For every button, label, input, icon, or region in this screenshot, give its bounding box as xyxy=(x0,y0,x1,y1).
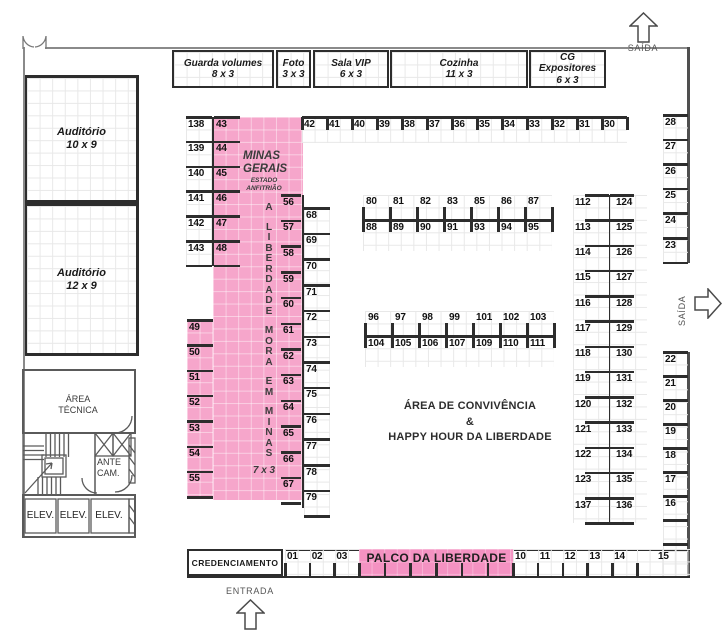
room-name: Auditório xyxy=(57,126,106,139)
booth-02: 02 xyxy=(312,551,323,562)
booth-divider xyxy=(187,496,213,499)
vertical-word: A xyxy=(261,203,277,214)
booth-divider xyxy=(416,207,419,232)
booth-group-island-80: 8081828385868788899091939495 xyxy=(363,195,552,251)
booth-126: 126 xyxy=(616,247,632,258)
booth-group-wall-28: 282726252423 xyxy=(663,115,688,263)
booth-60: 60 xyxy=(283,299,294,310)
booth-138: 138 xyxy=(188,119,204,130)
booth-23: 23 xyxy=(665,240,676,251)
booth-118: 118 xyxy=(575,348,591,359)
booth-79: 79 xyxy=(306,492,317,503)
double-door-icon xyxy=(21,32,48,49)
booth-51: 51 xyxy=(189,372,200,383)
booth-divider xyxy=(562,563,565,576)
booth-57: 57 xyxy=(283,222,294,233)
convivencia-line2: & xyxy=(348,415,592,431)
booth-110: 110 xyxy=(503,338,519,349)
booth-divider xyxy=(418,323,421,348)
vertical-letter: M xyxy=(261,407,277,418)
booth-19: 19 xyxy=(665,426,676,437)
booth-68: 68 xyxy=(306,210,317,221)
booth-120: 120 xyxy=(575,399,591,410)
room-auditorio-12x9: Auditório 12 x 9 xyxy=(24,203,139,356)
booth-116: 116 xyxy=(575,298,591,309)
booth-122: 122 xyxy=(575,449,591,460)
booth-15: 15 xyxy=(658,551,669,562)
ante-cam-line2: CAM. xyxy=(97,468,121,479)
booth-89: 89 xyxy=(393,222,404,233)
room-foto: Foto 3 x 3 xyxy=(276,50,311,88)
booth-group-top-row: 42414039383736353433323130 xyxy=(302,117,627,143)
minas-vertical-text: ALIBERDADEMORAEMMINAS xyxy=(261,203,277,469)
booth-62: 62 xyxy=(283,351,294,362)
booth-divider xyxy=(499,323,502,348)
booth-55: 55 xyxy=(189,473,200,484)
booth-107: 107 xyxy=(449,338,465,349)
booth-group-col-112: 112113114115116117118119120121122123137 xyxy=(573,195,609,523)
booth-48: 48 xyxy=(216,243,227,254)
arrow-up-icon xyxy=(629,12,658,43)
booth-01: 01 xyxy=(287,551,298,562)
booth-114: 114 xyxy=(575,247,591,258)
booth-112: 112 xyxy=(575,197,591,208)
booth-132: 132 xyxy=(616,399,632,410)
credenciamento-box: CREDENCIAMENTO xyxy=(187,549,283,576)
booth-divider xyxy=(472,323,475,348)
booth-63: 63 xyxy=(283,376,294,387)
booth-group-col-68: 686970717273747576777879 xyxy=(304,208,330,516)
booth-group-wall-22: 22212019181716 xyxy=(663,352,688,576)
booth-33: 33 xyxy=(529,119,540,130)
booth-41: 41 xyxy=(329,119,340,130)
booth-45: 45 xyxy=(216,168,227,179)
booth-03: 03 xyxy=(336,551,347,562)
booth-104: 104 xyxy=(368,338,384,349)
booth-divider xyxy=(524,207,527,232)
booth-13: 13 xyxy=(589,551,600,562)
booth-strip-edge xyxy=(302,116,627,119)
booth-divider xyxy=(626,117,629,130)
booth-37: 37 xyxy=(429,119,440,130)
booth-divider xyxy=(636,563,639,576)
booth-72: 72 xyxy=(306,312,317,323)
booth-40: 40 xyxy=(354,119,365,130)
booth-121: 121 xyxy=(575,424,591,435)
booth-22: 22 xyxy=(665,354,676,365)
minas-size-label: 7 x 3 xyxy=(242,465,286,476)
booth-134: 134 xyxy=(616,449,632,460)
booth-143: 143 xyxy=(188,243,204,254)
room-name: Auditório xyxy=(57,267,106,280)
booth-50: 50 xyxy=(189,347,200,358)
booth-59: 59 xyxy=(283,274,294,285)
booth-106: 106 xyxy=(422,338,438,349)
booth-47: 47 xyxy=(216,218,227,229)
arrow-right-icon xyxy=(694,288,722,319)
booth-124: 124 xyxy=(616,197,632,208)
booth-divider xyxy=(663,543,688,546)
booth-group-col-56: 565758596061626364656667 xyxy=(281,195,301,503)
booth-18: 18 xyxy=(665,450,676,461)
room-size: 10 x 9 xyxy=(66,139,97,152)
room-size: 8 x 3 xyxy=(212,69,234,81)
booth-35: 35 xyxy=(479,119,490,130)
booth-85: 85 xyxy=(474,196,485,207)
room-name: Cozinha xyxy=(440,58,479,70)
booth-46: 46 xyxy=(216,193,227,204)
room-cg-expositores: CG Expositores 6 x 3 xyxy=(529,50,606,88)
booth-21: 21 xyxy=(665,378,676,389)
vertical-letter: R xyxy=(261,347,277,358)
room-size: 6 x 3 xyxy=(340,69,362,81)
room-name: Sala VIP xyxy=(331,58,370,70)
booth-17: 17 xyxy=(665,474,676,485)
booth-117: 117 xyxy=(575,323,591,334)
booth-101: 101 xyxy=(476,312,492,323)
credenciamento-label: CREDENCIAMENTO xyxy=(192,558,279,568)
vertical-word: MINAS xyxy=(261,407,277,460)
vertical-letter: M xyxy=(261,388,277,399)
booth-71: 71 xyxy=(306,287,317,298)
booth-divider xyxy=(445,323,448,348)
booth-137: 137 xyxy=(575,500,591,511)
vertical-letter: D xyxy=(261,275,277,286)
booth-96: 96 xyxy=(368,312,379,323)
booth-140: 140 xyxy=(188,168,204,179)
booth-divider xyxy=(526,323,529,348)
booth-69: 69 xyxy=(306,235,317,246)
booth-78: 78 xyxy=(306,467,317,478)
booth-97: 97 xyxy=(395,312,406,323)
booth-divider xyxy=(585,522,609,525)
booth-49: 49 xyxy=(189,322,200,333)
booth-divider xyxy=(663,519,688,522)
minas-gerais-title: MINAS GERAIS xyxy=(243,150,289,175)
booth-77: 77 xyxy=(306,441,317,452)
room-size: 3 x 3 xyxy=(282,69,304,81)
booth-group-bottom-01: 010203 xyxy=(285,549,359,576)
booth-111: 111 xyxy=(530,338,545,349)
elevator-label-2: ELEV. xyxy=(57,510,90,521)
convivencia-label: ÁREA DE CONVIVÊNCIA & HAPPY HOUR DA LIBE… xyxy=(348,399,592,446)
area-tecnica-line1: ÁREA xyxy=(28,394,128,405)
booth-113: 113 xyxy=(575,222,591,233)
booth-divider xyxy=(470,207,473,232)
booth-divider xyxy=(586,563,589,576)
booth-102: 102 xyxy=(503,312,519,323)
booth-divider xyxy=(389,207,392,232)
convivencia-line3: HAPPY HOUR DA LIBERDADE xyxy=(348,430,592,446)
expo-floor-plan: Guarda volumes 8 x 3 Foto 3 x 3 Sala VIP… xyxy=(0,0,723,641)
booth-divider xyxy=(186,265,212,268)
booth-133: 133 xyxy=(616,424,632,435)
booth-group-left-43: 434445464748 xyxy=(214,117,240,266)
booth-88: 88 xyxy=(366,222,377,233)
booth-divider xyxy=(304,515,330,518)
booth-58: 58 xyxy=(283,248,294,259)
vertical-letter: E xyxy=(261,377,277,388)
vertical-letter: S xyxy=(261,449,277,460)
room-name: CG Expositores xyxy=(531,52,604,75)
booth-52: 52 xyxy=(189,397,200,408)
minas-gerais-subtitle: ESTADO ANFITRIÃO xyxy=(239,177,289,192)
booth-divider xyxy=(443,207,446,232)
booth-91: 91 xyxy=(447,222,458,233)
booth-38: 38 xyxy=(404,119,415,130)
room-guarda-volumes: Guarda volumes 8 x 3 xyxy=(172,50,274,88)
vertical-letter: A xyxy=(261,358,277,369)
booth-64: 64 xyxy=(283,402,294,413)
booth-group-left-138: 138139140141142143 xyxy=(186,117,212,266)
booth-34: 34 xyxy=(504,119,515,130)
booth-67: 67 xyxy=(283,479,294,490)
area-tecnica-label: ÁREA TÉCNICA xyxy=(28,394,128,416)
booth-30: 30 xyxy=(604,119,615,130)
booth-90: 90 xyxy=(420,222,431,233)
room-size: 6 x 3 xyxy=(556,75,578,87)
vertical-word: MORA xyxy=(261,326,277,368)
booth-94: 94 xyxy=(501,222,512,233)
vertical-word: LIBERDADE xyxy=(261,223,277,318)
booth-26: 26 xyxy=(665,166,676,177)
elevator-label-1: ELEV. xyxy=(24,510,57,521)
ante-cam-label: ANTE CAM. xyxy=(97,457,121,479)
entrada-sign: ENTRADA xyxy=(200,586,300,630)
booth-129: 129 xyxy=(616,323,632,334)
booth-divider xyxy=(391,323,394,348)
vertical-letter: E xyxy=(261,254,277,265)
booth-25: 25 xyxy=(665,190,676,201)
booth-105: 105 xyxy=(395,338,411,349)
booth-83: 83 xyxy=(447,196,458,207)
booth-20: 20 xyxy=(665,402,676,413)
saida-top-sign: SAÍDA xyxy=(618,12,668,53)
booth-44: 44 xyxy=(216,143,227,154)
booth-42: 42 xyxy=(304,119,315,130)
vertical-word: EM xyxy=(261,377,277,398)
booth-87: 87 xyxy=(528,196,539,207)
palco-label: PALCO DA LIBERDADE xyxy=(359,551,514,565)
booth-76: 76 xyxy=(306,415,317,426)
booth-10: 10 xyxy=(515,551,526,562)
booth-98: 98 xyxy=(422,312,433,323)
booth-group-col-49: 49505152535455 xyxy=(187,320,213,497)
vertical-letter: I xyxy=(261,233,277,244)
booth-divider xyxy=(663,262,688,265)
convivencia-line1: ÁREA DE CONVIVÊNCIA xyxy=(348,399,592,415)
booth-141: 141 xyxy=(188,193,204,204)
booth-81: 81 xyxy=(393,196,404,207)
booth-142: 142 xyxy=(188,218,204,229)
booth-61: 61 xyxy=(283,325,294,336)
vertical-letter: M xyxy=(261,326,277,337)
booth-14: 14 xyxy=(614,551,625,562)
booth-123: 123 xyxy=(575,474,591,485)
booth-divider xyxy=(611,563,614,576)
booth-11: 11 xyxy=(540,551,550,562)
booth-70: 70 xyxy=(306,261,317,272)
booth-135: 135 xyxy=(616,474,632,485)
booth-divider xyxy=(281,502,301,505)
booth-109: 109 xyxy=(476,338,492,349)
booth-43: 43 xyxy=(216,119,227,130)
area-tecnica-line2: TÉCNICA xyxy=(28,405,128,416)
booth-group-corner-15: 15 xyxy=(637,549,690,576)
booth-127: 127 xyxy=(616,272,632,283)
wall-top-edge xyxy=(45,47,690,49)
saida-top-label: SAÍDA xyxy=(618,43,668,53)
booth-75: 75 xyxy=(306,389,317,400)
vertical-letter: E xyxy=(261,307,277,318)
arrow-up-icon xyxy=(236,599,265,630)
booth-139: 139 xyxy=(188,143,204,154)
room-cozinha: Cozinha 11 x 3 xyxy=(390,50,528,88)
vertical-letter: N xyxy=(261,428,277,439)
booth-divider xyxy=(551,207,554,232)
booth-119: 119 xyxy=(575,373,591,384)
room-name: Foto xyxy=(283,58,305,70)
room-size: 11 x 3 xyxy=(445,69,472,81)
booth-group-bottom-10: 1011121314 xyxy=(513,549,637,576)
booth-66: 66 xyxy=(283,454,294,465)
booth-115: 115 xyxy=(575,272,591,283)
booth-125: 125 xyxy=(616,222,632,233)
booth-65: 65 xyxy=(283,428,294,439)
saida-right-label: SAÍDA xyxy=(677,286,687,326)
booth-74: 74 xyxy=(306,364,317,375)
vertical-letter: A xyxy=(261,203,277,214)
booth-24: 24 xyxy=(665,215,676,226)
booth-36: 36 xyxy=(454,119,465,130)
booth-12: 12 xyxy=(565,551,576,562)
booth-54: 54 xyxy=(189,448,200,459)
room-size: 12 x 9 xyxy=(66,280,97,293)
entrada-label: ENTRADA xyxy=(200,586,300,596)
booth-131: 131 xyxy=(616,373,632,384)
booth-128: 128 xyxy=(616,298,632,309)
booth-31: 31 xyxy=(579,119,590,130)
booth-divider xyxy=(364,323,367,348)
booth-divider xyxy=(284,563,287,576)
booth-80: 80 xyxy=(366,196,377,207)
booth-73: 73 xyxy=(306,338,317,349)
room-sala-vip: Sala VIP 6 x 3 xyxy=(313,50,389,88)
booth-divider xyxy=(610,522,634,525)
booth-16: 16 xyxy=(665,498,676,509)
booth-group-island-96: 96979899101102103104105106107109110111 xyxy=(365,311,554,367)
booth-99: 99 xyxy=(449,312,460,323)
booth-divider xyxy=(362,207,365,232)
elevator-label-3: ELEV. xyxy=(91,510,127,521)
booth-130: 130 xyxy=(616,348,632,359)
booth-divider xyxy=(309,563,312,576)
booth-28: 28 xyxy=(665,117,676,128)
booth-136: 136 xyxy=(616,500,632,511)
booth-32: 32 xyxy=(554,119,565,130)
booth-86: 86 xyxy=(501,196,512,207)
vertical-letter: D xyxy=(261,296,277,307)
ante-cam-line1: ANTE xyxy=(97,457,121,468)
booth-103: 103 xyxy=(530,312,546,323)
booth-group-col-124: 124125126127128129130131132133134135136 xyxy=(610,195,647,523)
booth-divider xyxy=(497,207,500,232)
booth-53: 53 xyxy=(189,423,200,434)
booth-divider xyxy=(333,563,336,576)
booth-95: 95 xyxy=(528,222,539,233)
booth-divider xyxy=(553,323,556,348)
booth-27: 27 xyxy=(665,141,676,152)
room-name: Guarda volumes xyxy=(184,58,262,70)
booth-divider xyxy=(537,563,540,576)
booth-82: 82 xyxy=(420,196,431,207)
booth-39: 39 xyxy=(379,119,390,130)
booth-56: 56 xyxy=(283,197,294,208)
booth-divider xyxy=(214,265,240,268)
booth-93: 93 xyxy=(474,222,485,233)
room-auditorio-10x9: Auditório 10 x 9 xyxy=(24,75,139,203)
